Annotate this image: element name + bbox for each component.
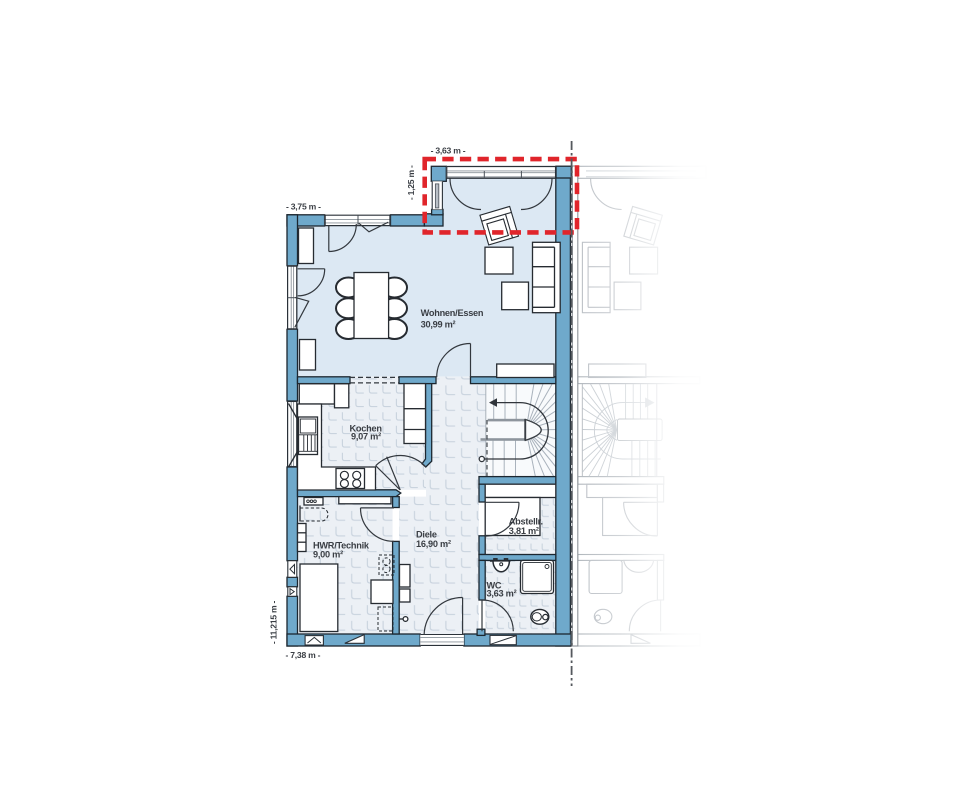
svg-text:- 3,63 m -: - 3,63 m -: [431, 146, 466, 156]
svg-text:- 1,25 m -: - 1,25 m -: [406, 165, 416, 200]
svg-text:- 7,38 m -: - 7,38 m -: [286, 650, 321, 660]
svg-text:Wohnen/Essen: Wohnen/Essen: [421, 308, 484, 318]
svg-text:9,00 m²: 9,00 m²: [313, 550, 343, 560]
svg-text:30,99 m²: 30,99 m²: [421, 320, 456, 330]
svg-text:3,81 m²: 3,81 m²: [509, 526, 539, 536]
svg-text:Abstellr.: Abstellr.: [509, 517, 543, 527]
svg-text:16,90 m²: 16,90 m²: [416, 539, 451, 549]
svg-text:3,63 m²: 3,63 m²: [487, 589, 517, 599]
svg-text:- 3,75 m -: - 3,75 m -: [286, 201, 321, 211]
svg-text:Diele: Diele: [416, 530, 437, 540]
svg-text:9,07 m²: 9,07 m²: [351, 432, 381, 442]
svg-text:- 11,215 m -: - 11,215 m -: [269, 600, 279, 644]
